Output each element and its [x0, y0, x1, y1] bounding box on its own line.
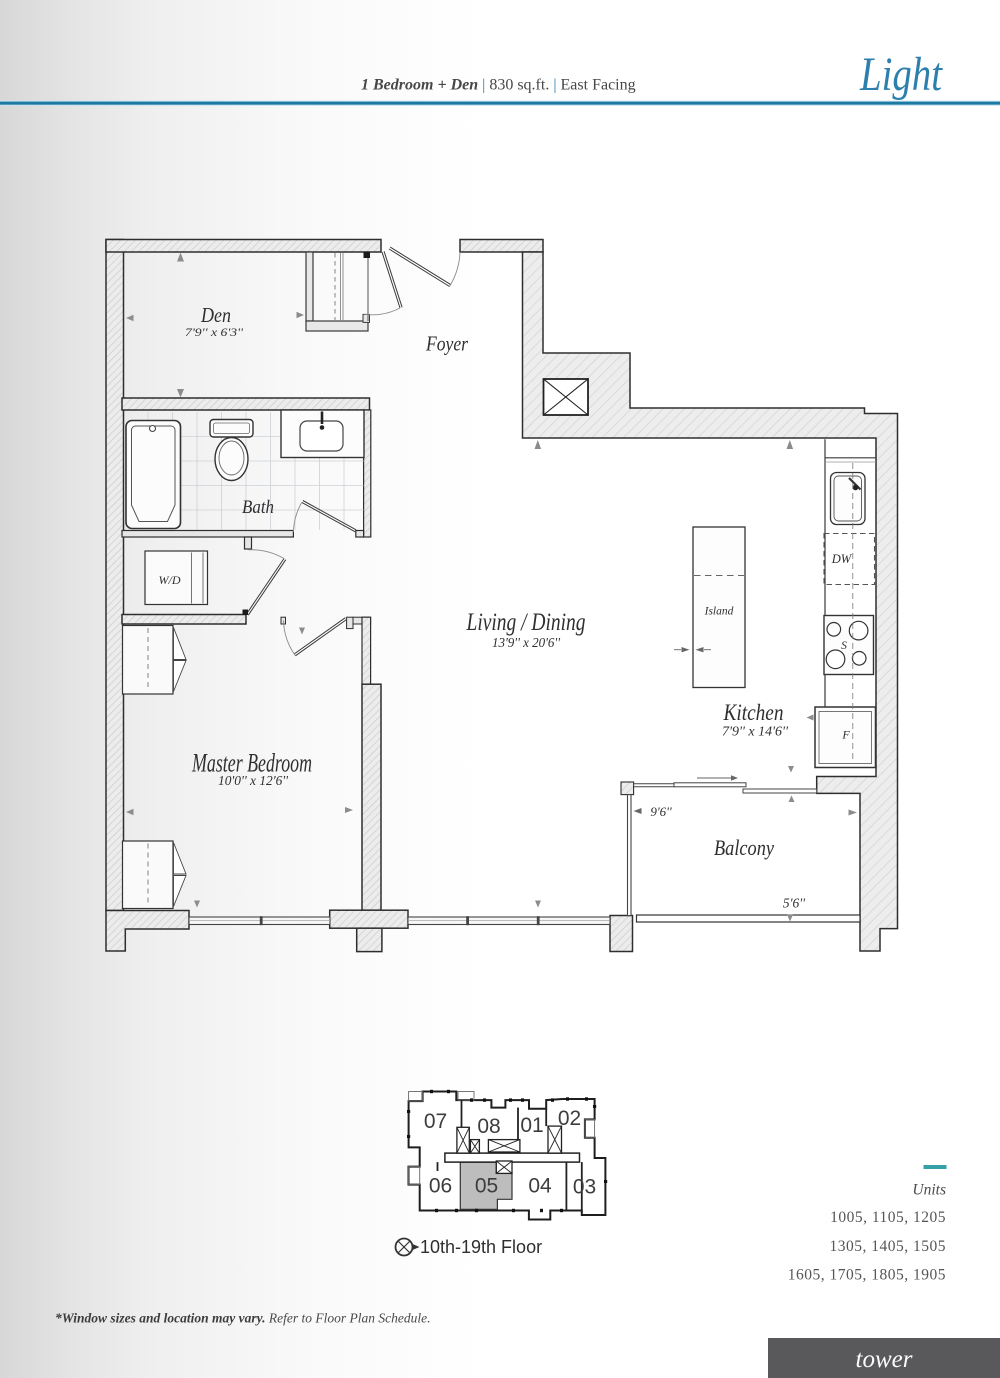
svg-text:DW: DW — [831, 552, 853, 566]
svg-text:Living / Dining: Living / Dining — [466, 607, 586, 636]
svg-text:10'0'' x 12'6'': 10'0'' x 12'6'' — [218, 774, 289, 789]
svg-text:W/D: W/D — [159, 573, 181, 587]
svg-text:9'6'': 9'6'' — [650, 804, 672, 819]
svg-text:1005, 1105, 1205: 1005, 1105, 1205 — [830, 1209, 946, 1226]
svg-text:1605, 1705, 1805, 1905: 1605, 1705, 1805, 1905 — [788, 1267, 946, 1284]
svg-text:7'9'' x 6'3'': 7'9'' x 6'3'' — [185, 325, 243, 339]
svg-text:02: 02 — [558, 1107, 581, 1130]
svg-text:Light: Light — [859, 48, 943, 101]
svg-text:Kitchen: Kitchen — [723, 700, 784, 725]
svg-text:1 Bedroom + Den | 830 sq.ft.: 1 Bedroom + Den | 830 sq.ft. | East Faci… — [361, 77, 636, 94]
svg-text:13'9'' x 20'6'': 13'9'' x 20'6'' — [492, 636, 561, 651]
svg-text:7'9'' x 14'6'': 7'9'' x 14'6'' — [722, 725, 789, 740]
svg-text:03: 03 — [573, 1176, 596, 1199]
svg-text:08: 08 — [477, 1115, 500, 1138]
svg-text:F: F — [841, 728, 850, 742]
svg-text:01: 01 — [520, 1114, 543, 1137]
svg-text:04: 04 — [528, 1175, 552, 1198]
svg-text:Bath: Bath — [242, 497, 274, 518]
svg-text:5'6'': 5'6'' — [783, 896, 806, 911]
svg-text:07: 07 — [424, 1110, 447, 1133]
svg-text:Balcony: Balcony — [714, 835, 774, 860]
svg-text:10th-19th Floor: 10th-19th Floor — [420, 1237, 542, 1257]
svg-text:Foyer: Foyer — [425, 332, 468, 356]
svg-text:06: 06 — [429, 1175, 452, 1198]
svg-text:05: 05 — [475, 1175, 498, 1198]
svg-text:Island: Island — [704, 606, 734, 618]
svg-text:Units: Units — [912, 1182, 946, 1199]
svg-text:*Window sizes and location may: *Window sizes and location may vary. Ref… — [55, 1311, 430, 1326]
svg-text:S: S — [841, 640, 847, 652]
svg-text:tower: tower — [856, 1346, 913, 1373]
svg-text:Den: Den — [200, 303, 231, 327]
svg-text:1305, 1405, 1505: 1305, 1405, 1505 — [830, 1238, 947, 1255]
